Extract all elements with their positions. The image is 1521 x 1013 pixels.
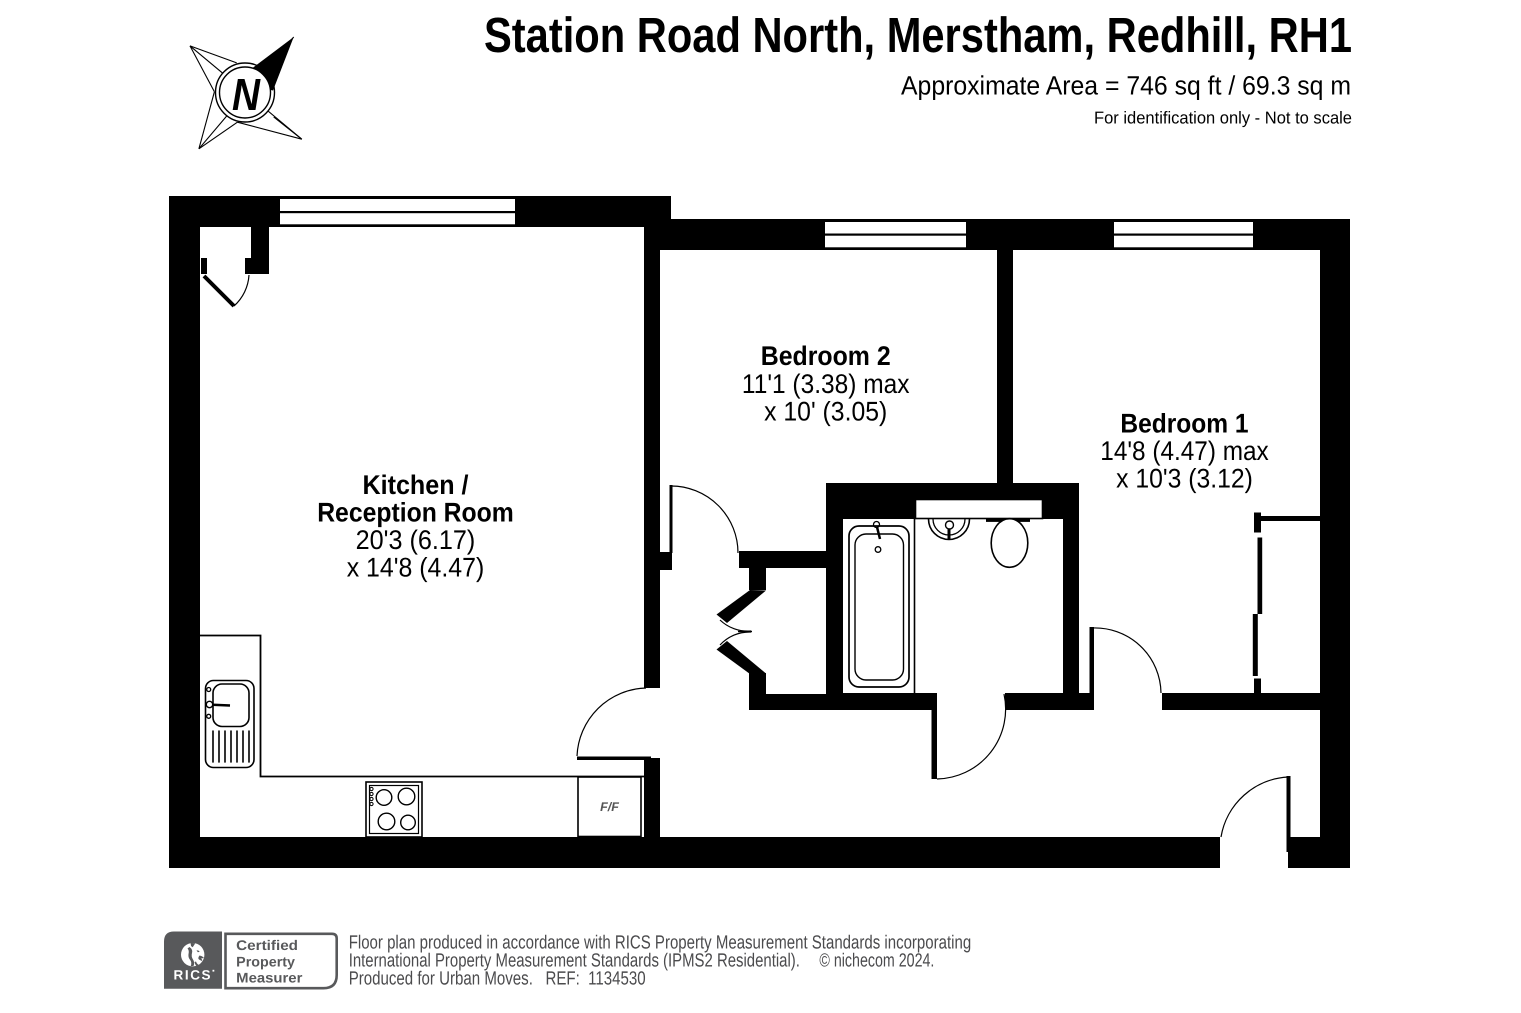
svg-text:x 10'3 (3.12): x 10'3 (3.12) — [1116, 464, 1253, 494]
svg-text:© nichecom 2024.: © nichecom 2024. — [819, 950, 934, 971]
svg-text:Certified: Certified — [236, 937, 298, 953]
svg-text:14'8 (4.47) max: 14'8 (4.47) max — [1100, 436, 1269, 466]
svg-text:Kitchen /: Kitchen / — [363, 470, 469, 500]
svg-text:Approximate Area = 746 sq ft /: Approximate Area = 746 sq ft / 69.3 sq m — [901, 71, 1351, 101]
svg-text:Bedroom 1: Bedroom 1 — [1120, 409, 1248, 439]
svg-text:Measurer: Measurer — [236, 970, 303, 986]
svg-text:For identification only - Not: For identification only - Not to scale — [1094, 108, 1352, 128]
svg-text:x 10' (3.05): x 10' (3.05) — [764, 396, 887, 426]
svg-text:11'1 (3.38) max: 11'1 (3.38) max — [742, 369, 910, 399]
svg-text:N: N — [232, 69, 261, 120]
svg-text:20'3 (6.17): 20'3 (6.17) — [356, 525, 476, 555]
svg-text:x 14'8 (4.47): x 14'8 (4.47) — [347, 553, 485, 583]
svg-text:Property: Property — [236, 953, 295, 969]
svg-text:RICS: RICS — [174, 968, 213, 983]
svg-text:Produced for Urban Moves. RE: Produced for Urban Moves. REF: 1134530 — [349, 968, 646, 989]
svg-text:Reception Room: Reception Room — [317, 498, 514, 528]
svg-text:F/F: F/F — [600, 800, 619, 814]
svg-text:Bedroom 2: Bedroom 2 — [761, 341, 891, 371]
svg-text:Station Road North, Merstham,: Station Road North, Merstham, Redhill, R… — [484, 8, 1352, 63]
